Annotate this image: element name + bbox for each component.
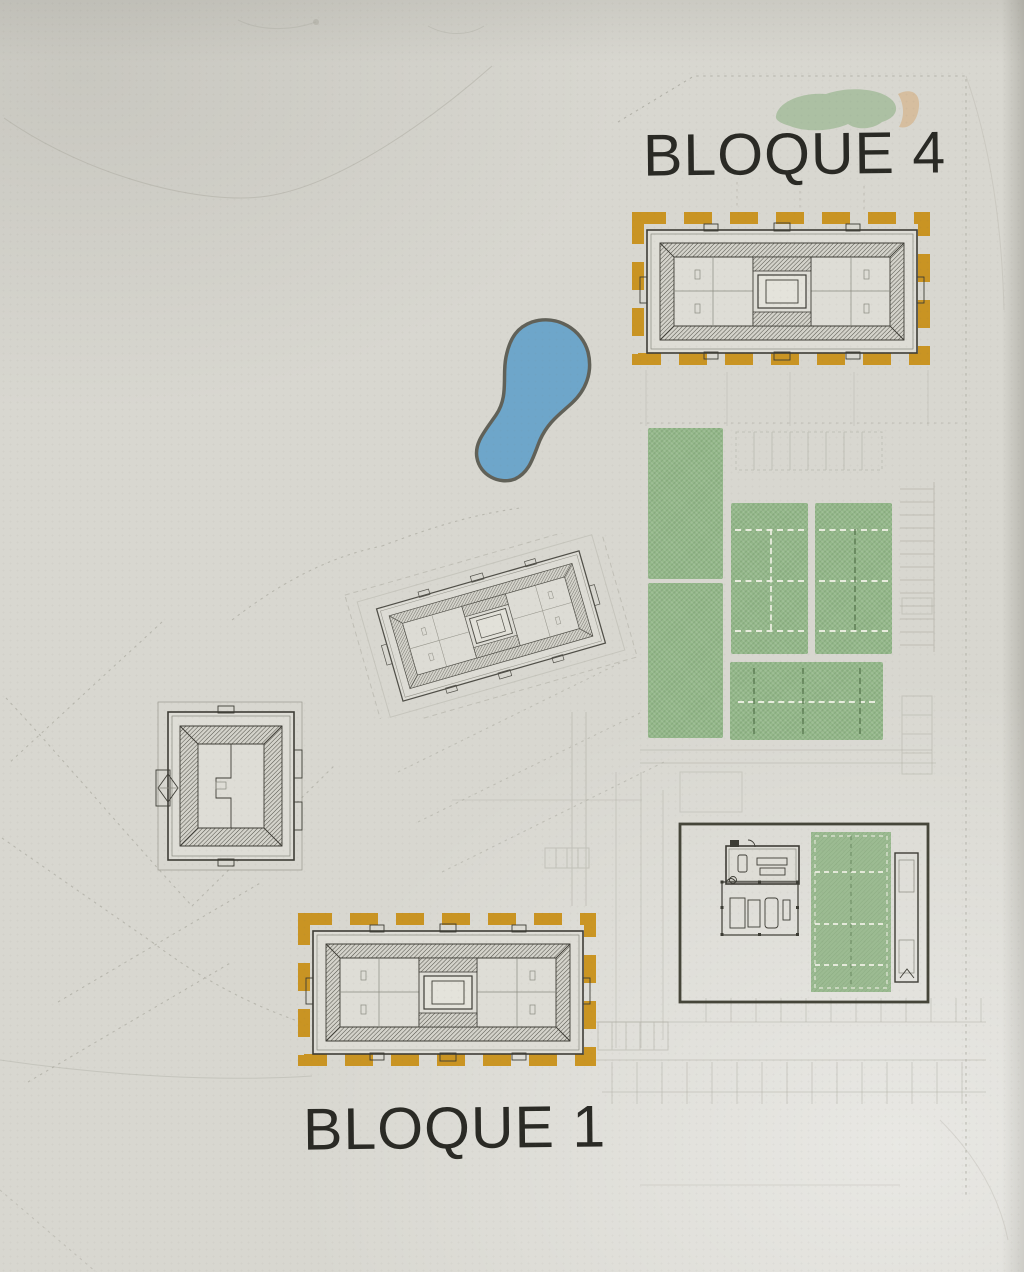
lawn-court-1 <box>648 428 723 579</box>
bloque-1-building <box>294 909 600 1069</box>
clubhouse-court <box>811 832 891 992</box>
central-rotated-building <box>340 533 642 719</box>
lawn-court-2 <box>648 583 723 738</box>
pond <box>470 314 600 489</box>
clubhouse-compound <box>676 820 934 1006</box>
padel-court-1 <box>731 503 808 654</box>
clubhouse-annex <box>721 879 800 937</box>
equipment-room <box>895 853 918 982</box>
bloque-4-building <box>628 208 934 368</box>
clubhouse-main-building <box>726 840 799 884</box>
west-square-building <box>154 694 310 880</box>
padel-court-2 <box>815 503 892 654</box>
label-bloque-1: BLOQUE 1 <box>303 1092 607 1163</box>
label-bloque-4: BLOQUE 4 <box>643 118 947 189</box>
site-plan-page: BLOQUE 4 BLOQUE 1 <box>0 0 1024 1272</box>
padel-court-3 <box>730 662 883 740</box>
